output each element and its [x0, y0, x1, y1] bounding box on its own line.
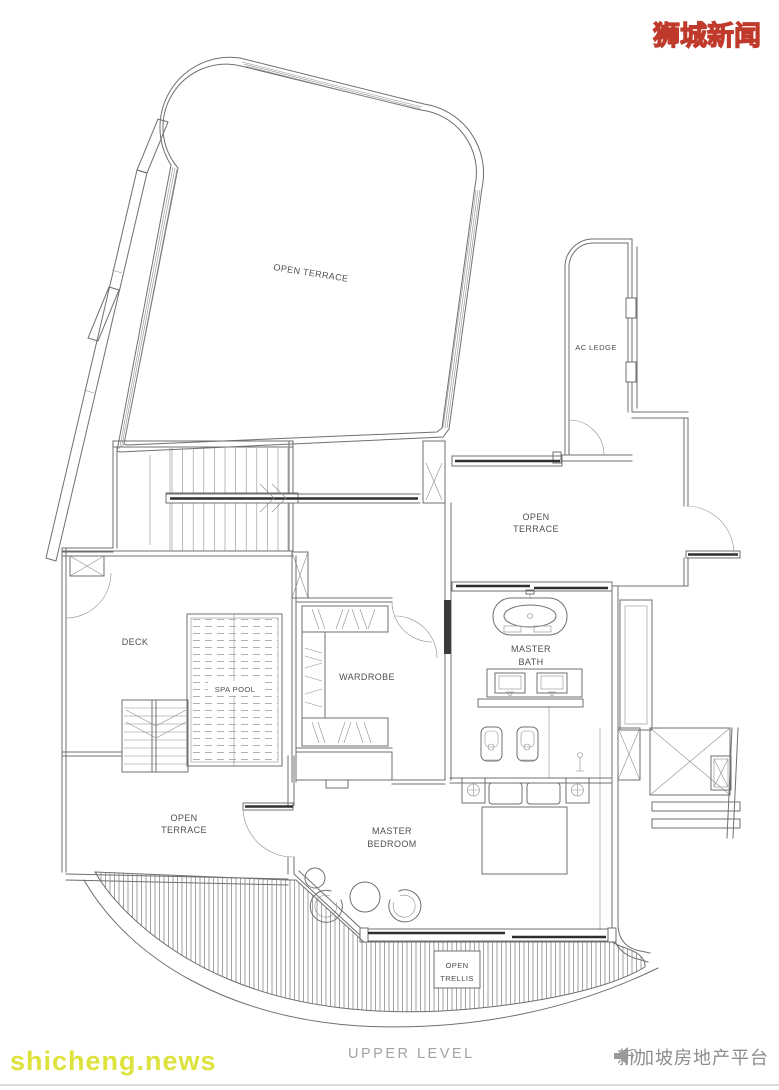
- label-open-terrace-lower-2: TERRACE: [161, 825, 207, 835]
- label-wardrobe: WARDROBE: [339, 672, 395, 682]
- label-master-bath-2: BATH: [519, 657, 544, 667]
- publisher-credit: 新加坡房地产平台: [612, 1044, 769, 1070]
- main-staircase: [62, 441, 420, 598]
- label-open-terrace-right-1: OPEN: [522, 512, 549, 522]
- right-planter-ledge: [618, 600, 740, 838]
- open-trellis-band: [84, 872, 658, 1027]
- watermark-shicheng: shicheng.news: [10, 1046, 217, 1077]
- label-open-trellis-2: TRELLIS: [440, 974, 474, 983]
- label-open-terrace-lower-1: OPEN: [170, 813, 197, 823]
- label-open-terrace-right-2: TERRACE: [513, 524, 559, 534]
- label-ac-ledge: AC LEDGE: [575, 343, 617, 352]
- floor-plan-drawing: OPEN TERRACE AC LEDGE OPEN TERRACE MASTE…: [0, 0, 779, 1090]
- plan-title: UPPER LEVEL: [348, 1046, 475, 1062]
- label-spa-pool: SPA POOL: [215, 685, 256, 694]
- label-deck: DECK: [122, 637, 149, 647]
- label-open-terrace-top: OPEN TERRACE: [273, 262, 349, 284]
- label-master-bedroom-1: MASTER: [372, 826, 412, 836]
- room-deck: [62, 548, 122, 872]
- label-master-bedroom-2: BEDROOM: [367, 839, 416, 849]
- small-staircase: [122, 700, 188, 772]
- label-open-trellis-1: OPEN: [445, 961, 468, 970]
- room-ac-ledge: [553, 239, 740, 586]
- room-master-bath: [395, 582, 652, 962]
- room-open-terrace-top: [117, 57, 484, 452]
- room-master-bedroom: [294, 778, 616, 942]
- floor-plan-image: OPEN TERRACE AC LEDGE OPEN TERRACE MASTE…: [0, 0, 779, 1090]
- label-master-bath-1: MASTER: [511, 644, 551, 654]
- site-logo: 狮城新闻: [653, 14, 773, 53]
- bottom-divider: [0, 1084, 779, 1086]
